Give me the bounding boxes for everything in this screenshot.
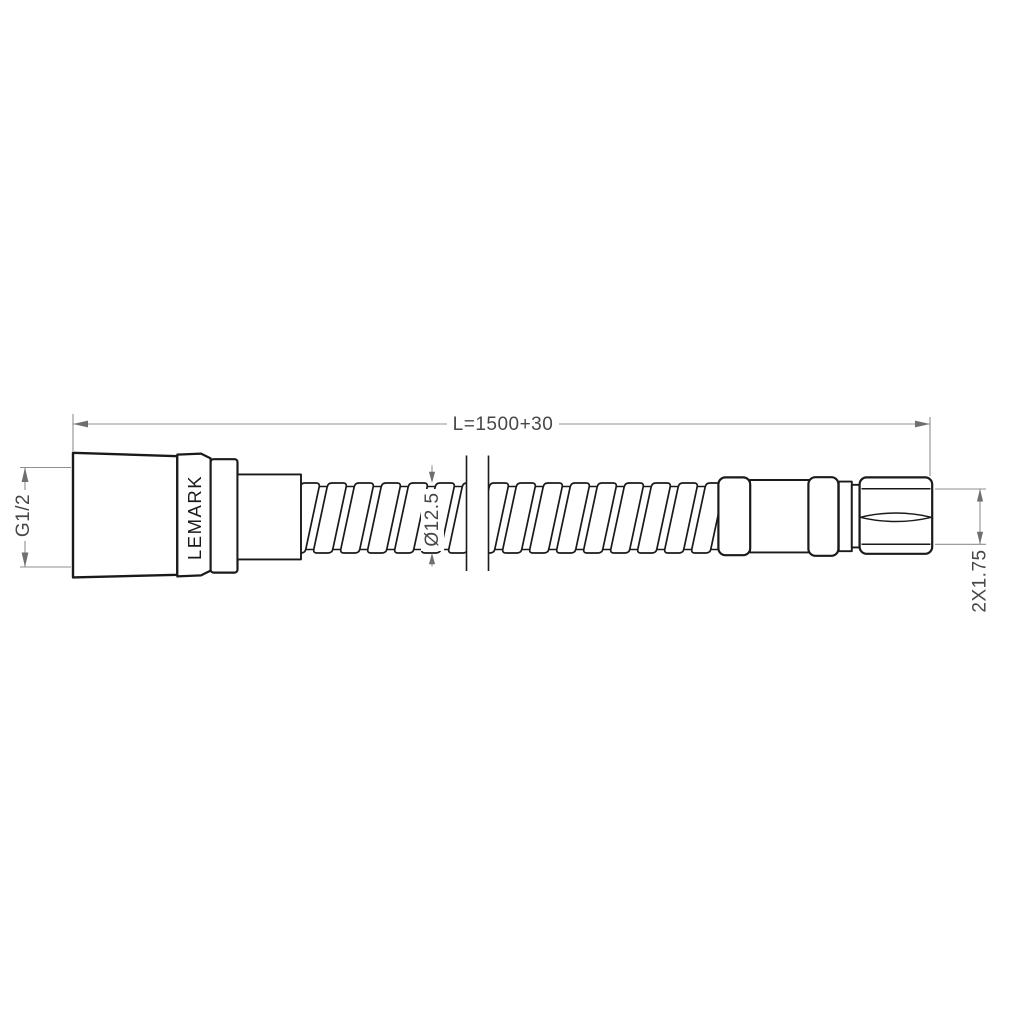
thread-left-arrow-down	[22, 553, 29, 568]
break-mask	[466, 444, 489, 580]
thread-left-label: G1/2	[13, 494, 34, 537]
diameter-arrow-top	[429, 472, 435, 483]
cone-collar	[211, 459, 238, 572]
length-dimension-label: L=1500+30	[453, 414, 554, 435]
nut-facet-lens	[860, 513, 931, 521]
hose-body	[287, 483, 725, 553]
right-collar-1	[718, 477, 750, 555]
technical-drawing-canvas: LEMARK L=1500+30	[0, 0, 1024, 1024]
right-collar-2	[808, 477, 838, 556]
left-fitting: LEMARK	[73, 453, 301, 578]
shower-hose-diagram: LEMARK L=1500+30	[0, 0, 1024, 1024]
thread-left-arrow-up	[22, 468, 29, 483]
dimension-thread-right: 2X1.75	[935, 489, 991, 613]
right-fitting	[718, 477, 932, 556]
left-ferrule	[238, 474, 302, 559]
diameter-arrow-bottom	[429, 553, 435, 564]
hose-break	[466, 444, 489, 580]
right-cylinder	[750, 480, 809, 552]
brand-label: LEMARK	[184, 475, 205, 560]
length-arrow-right	[915, 421, 930, 428]
hex-nut	[860, 477, 933, 553]
cone-body	[73, 453, 177, 578]
dimension-thread-left: G1/2	[13, 468, 71, 568]
thread-right-label: 2X1.75	[970, 549, 991, 612]
diameter-label: Ø12.5	[422, 492, 443, 546]
washer-strip	[852, 485, 860, 548]
right-band	[839, 482, 852, 552]
thread-right-arrow-down	[977, 532, 983, 545]
thread-right-arrow-up	[977, 489, 983, 502]
length-arrow-left	[73, 421, 88, 428]
